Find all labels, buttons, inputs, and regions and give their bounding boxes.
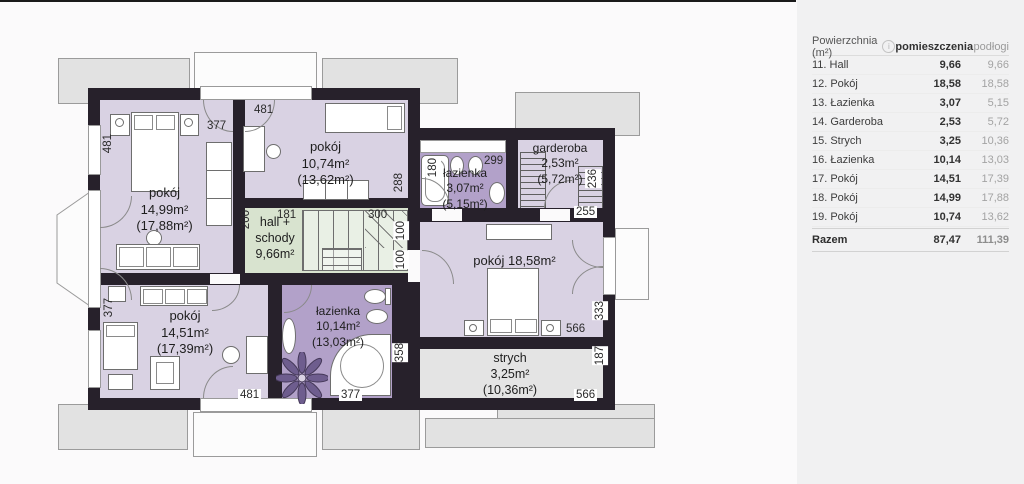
dim-label: 481: [102, 134, 114, 153]
wall: [408, 88, 420, 140]
bath-niche: [420, 140, 506, 153]
room-label-pokoj-nw: pokój 14,99m² (17,88m²): [112, 185, 217, 235]
dim-label: 377: [103, 298, 115, 317]
table-row: 17. Pokój 14,51 17,39: [812, 170, 1009, 189]
room-floor-area: (17,39m²): [157, 341, 213, 358]
wall: [420, 128, 603, 140]
room-area: 10,74m²: [302, 156, 350, 173]
row-rooms-value: 14,99: [891, 192, 961, 204]
toilet: [364, 289, 386, 304]
dim-label: 187: [592, 346, 608, 365]
dim-label: 333: [592, 301, 608, 320]
dim-label: 299: [484, 155, 503, 167]
stairs-lower-flight: [322, 248, 362, 271]
room-area: 3,25m²: [491, 366, 530, 382]
row-name: 12. Pokój: [812, 78, 891, 90]
dim-label: 377: [207, 120, 226, 132]
doorway: [408, 250, 420, 282]
row-floors-value: 13,03: [961, 154, 1009, 166]
table: [108, 374, 133, 390]
room-area: 14,99m²: [141, 202, 189, 219]
bathtub-basin: [340, 344, 384, 388]
room-name: strych: [493, 350, 526, 366]
pillow: [387, 106, 402, 130]
room-name: pokój: [169, 308, 200, 325]
table-row: 19. Pokój 10,74 13,62: [812, 208, 1009, 227]
dim-label: 288: [393, 173, 405, 192]
row-name: 13. Łazienka: [812, 97, 891, 109]
table-row: 15. Strych 3,25 10,36: [812, 132, 1009, 151]
row-floors-value: 13,62: [961, 211, 1009, 223]
doorway: [540, 209, 570, 221]
armchair-seat: [156, 362, 174, 384]
row-rooms-value: 10,14: [891, 154, 961, 166]
room-area: 3,07m²: [446, 181, 483, 196]
dim-label: 255: [574, 206, 597, 218]
area-table: Powierzchnia (m²) i pomieszczenia podłog…: [812, 38, 1009, 252]
room-name: pokój 18,58m²: [473, 253, 555, 270]
room-area: 9,66m²: [256, 246, 295, 262]
room-label-pokoj-n: pokój 10,74m² (13,62m²): [273, 139, 378, 189]
lamp: [184, 118, 193, 127]
dim-label: 300: [368, 209, 387, 221]
dim-label: 358: [392, 343, 408, 362]
room-floor-area: (10,36m²): [483, 382, 537, 398]
row-rooms-value: 18,58: [891, 78, 961, 90]
pillow: [134, 115, 153, 130]
row-rooms-value: 3,07: [891, 97, 961, 109]
info-icon[interactable]: i: [882, 40, 895, 53]
toilet-tank: [385, 288, 391, 305]
room-label-hall: hall + schody 9,66m²: [244, 214, 306, 262]
bed: [487, 268, 539, 336]
row-name: 15. Strych: [812, 135, 891, 147]
window: [200, 86, 312, 100]
room-floor-area: (5,15m²): [442, 197, 487, 212]
total-label: Razem: [812, 234, 891, 246]
cushion: [119, 247, 144, 267]
floor-plan: pokój 14,99m² (17,88m²) pokój 10,74m² (1…: [0, 0, 797, 484]
table-row: 11. Hall 9,66 9,66: [812, 56, 1009, 75]
pillow: [156, 115, 175, 130]
dim-label: 377: [339, 389, 362, 401]
room-label-pokoj-sw: pokój 14,51m² (17,39m²): [130, 308, 240, 358]
dormer-window-bay: [193, 412, 317, 457]
table-row: 18. Pokój 14,99 17,88: [812, 189, 1009, 208]
row-name: 16. Łazienka: [812, 154, 891, 166]
lamp: [469, 324, 477, 332]
row-name: 11. Hall: [812, 59, 891, 71]
total-rooms-value: 87,47: [891, 234, 961, 246]
table-row: 12. Pokój 18,58 18,58: [812, 75, 1009, 94]
row-name: 18. Pokój: [812, 192, 891, 204]
wall: [392, 285, 408, 398]
row-floors-value: 5,72: [961, 116, 1009, 128]
bed: [131, 112, 179, 192]
cushion: [146, 247, 171, 267]
area-header-label: Powierzchnia (m²): [812, 35, 877, 59]
balcony-door-opening: [603, 237, 616, 295]
dim-label: 481: [254, 104, 273, 116]
dim-label: 566: [574, 389, 597, 401]
row-rooms-value: 10,74: [891, 211, 961, 223]
room-name: garderoba: [533, 141, 588, 156]
dim-label: 180: [425, 158, 441, 177]
bed: [325, 103, 405, 133]
table-row: 14. Garderoba 2,53 5,72: [812, 113, 1009, 132]
room-name: pokój: [149, 185, 180, 202]
row-floors-value: 9,66: [961, 59, 1009, 71]
sofa: [116, 244, 200, 270]
desk: [246, 336, 268, 374]
cushion: [187, 289, 207, 304]
lamp: [115, 118, 124, 127]
area-header-cell: Powierzchnia (m²) i: [812, 35, 895, 59]
col-rooms-header: pomieszczenia: [895, 41, 965, 53]
cushion: [165, 289, 185, 304]
doorway: [210, 274, 240, 284]
roof-block: [322, 404, 420, 450]
row-name: 14. Garderoba: [812, 116, 891, 128]
row-rooms-value: 3,25: [891, 135, 961, 147]
room-name: pokój: [310, 139, 341, 156]
room-area: 10,14m²: [316, 319, 360, 334]
dormer-window-bay: [615, 228, 649, 300]
room-label-strych: strych 3,25m² (10,36m²): [455, 350, 565, 398]
pillow: [490, 319, 512, 333]
row-floors-value: 17,39: [961, 173, 1009, 185]
total-floors-value: 111,39: [961, 234, 1009, 246]
room-floor-area: (17,88m²): [136, 218, 192, 235]
dim-label: 181: [277, 209, 296, 221]
cushion: [143, 289, 163, 304]
floor-plan-page: pokój 14,99m² (17,88m²) pokój 10,74m² (1…: [0, 0, 1024, 484]
row-rooms-value: 14,51: [891, 173, 961, 185]
roof-block: [425, 418, 655, 448]
table-total-row: Razem 87,47 111,39: [812, 228, 1009, 252]
table-row: 13. Łazienka 3,07 5,15: [812, 94, 1009, 113]
room-name: łazienka: [443, 166, 487, 181]
roof-block: [58, 404, 188, 450]
lamp: [546, 324, 554, 332]
armchair: [150, 356, 180, 390]
room-name: łazienka: [316, 304, 360, 319]
dim-label: 100: [393, 250, 409, 269]
window: [88, 330, 101, 388]
row-floors-value: 5,15: [961, 97, 1009, 109]
dim-label: 100: [393, 221, 409, 240]
row-rooms-value: 2,53: [891, 116, 961, 128]
pillow: [515, 319, 537, 333]
sofa: [140, 286, 208, 306]
room-label-pokoj-e: pokój 18,58m²: [452, 253, 577, 270]
room-area: 2,53m²: [541, 156, 578, 171]
area-panel: Powierzchnia (m²) i pomieszczenia podłog…: [797, 0, 1024, 484]
room-label-lazienka-s: łazienka 10,14m² (13,03m²): [292, 304, 384, 350]
room-floor-area: (13,03m²): [312, 335, 364, 350]
row-floors-value: 17,88: [961, 192, 1009, 204]
wall: [420, 337, 603, 349]
room-area: 14,51m²: [161, 325, 209, 342]
cushion: [173, 247, 198, 267]
wall: [88, 273, 408, 285]
window: [88, 125, 101, 175]
dim-label: 200: [240, 210, 252, 229]
dresser: [486, 224, 552, 240]
room-floor-area: (5,72m²): [537, 172, 582, 187]
col-floors-header: podłogi: [965, 41, 1009, 53]
row-name: 19. Pokój: [812, 211, 891, 223]
dim-label: 566: [566, 323, 585, 335]
plant-icon: [276, 352, 328, 404]
row-floors-value: 18,58: [961, 78, 1009, 90]
room-name: schody: [255, 230, 295, 246]
dim-label: 236: [585, 169, 601, 188]
dim-label: 481: [238, 389, 261, 401]
row-floors-value: 10,36: [961, 135, 1009, 147]
desk: [243, 126, 265, 172]
room-floor-area: (13,62m²): [297, 172, 353, 189]
table-header: Powierzchnia (m²) i pomieszczenia podłog…: [812, 38, 1009, 56]
table-row: 16. Łazienka 10,14 13,03: [812, 151, 1009, 170]
row-name: 17. Pokój: [812, 173, 891, 185]
row-rooms-value: 9,66: [891, 59, 961, 71]
